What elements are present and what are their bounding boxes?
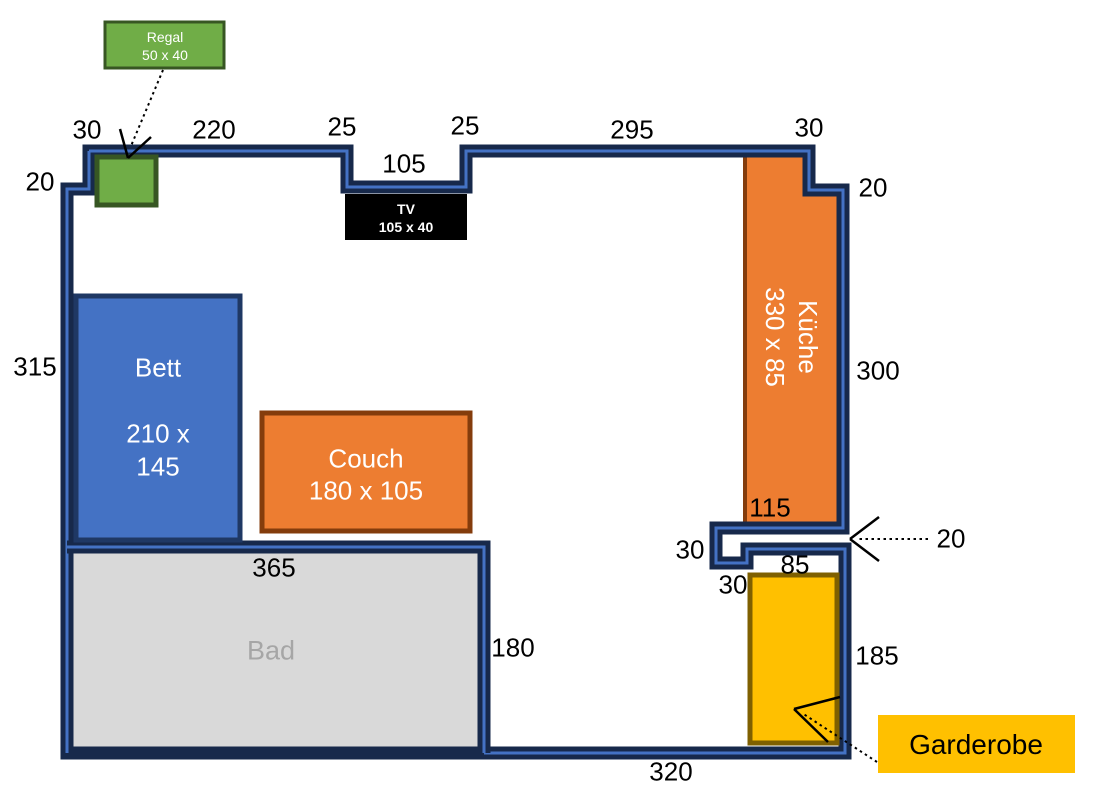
floor-plan-drawing — [0, 0, 1095, 804]
dim-niche-right: 25 — [451, 111, 480, 142]
dim-top-wall-right: 295 — [610, 115, 653, 146]
bett-size-line1: 210 x — [126, 419, 190, 450]
dim-bad-width: 365 — [252, 553, 295, 584]
dim-kueche-bottom: 115 — [749, 493, 790, 524]
dim-top-wall-left: 220 — [192, 115, 235, 146]
dim-door-gap: 20 — [937, 524, 966, 555]
dim-left-wall: 315 — [13, 352, 56, 383]
dim-niche-width: 105 — [382, 149, 425, 180]
kueche-label: Küche — [791, 287, 824, 387]
garderobe-shape — [750, 575, 837, 743]
dim-step-down: 30 — [676, 535, 705, 566]
tv-size: 105 x 40 — [379, 218, 434, 236]
kueche-label-block: Küche 330 x 85 — [758, 287, 824, 387]
dim-right-wall: 300 — [856, 356, 899, 387]
dim-bottom-wall: 320 — [649, 757, 692, 788]
regal-callout-label: Regal — [147, 28, 184, 46]
regal-shape — [97, 157, 156, 205]
dim-top-step-left: 30 — [73, 115, 102, 146]
dim-garderobe-right-wall: 185 — [855, 641, 898, 672]
bett-label: Bett — [135, 353, 181, 384]
garderobe-callout-label: Garderobe — [909, 729, 1043, 761]
couch-label: Couch — [328, 444, 403, 475]
dim-niche-left: 25 — [328, 112, 357, 143]
dim-bad-right-wall: 180 — [491, 633, 534, 664]
dim-garderobe-wall: 85 — [781, 550, 810, 581]
floor-plan-canvas: 30 220 25 105 25 295 30 20 20 315 300 11… — [0, 0, 1095, 804]
dim-right-step: 20 — [859, 173, 888, 204]
regal-callout-size: 50 x 40 — [142, 46, 188, 64]
kueche-size: 330 x 85 — [758, 287, 791, 387]
bad-label: Bad — [247, 636, 295, 667]
dim-left-step: 20 — [26, 167, 55, 198]
couch-size: 180 x 105 — [309, 476, 423, 507]
bett-size-line2: 145 — [136, 452, 179, 483]
dim-garderobe-offset: 30 — [719, 570, 748, 601]
gap-arrowhead-icon — [850, 517, 879, 561]
tv-label: TV — [397, 200, 415, 218]
regal-arrow-line — [131, 70, 163, 146]
dim-top-step-right: 30 — [795, 113, 824, 144]
